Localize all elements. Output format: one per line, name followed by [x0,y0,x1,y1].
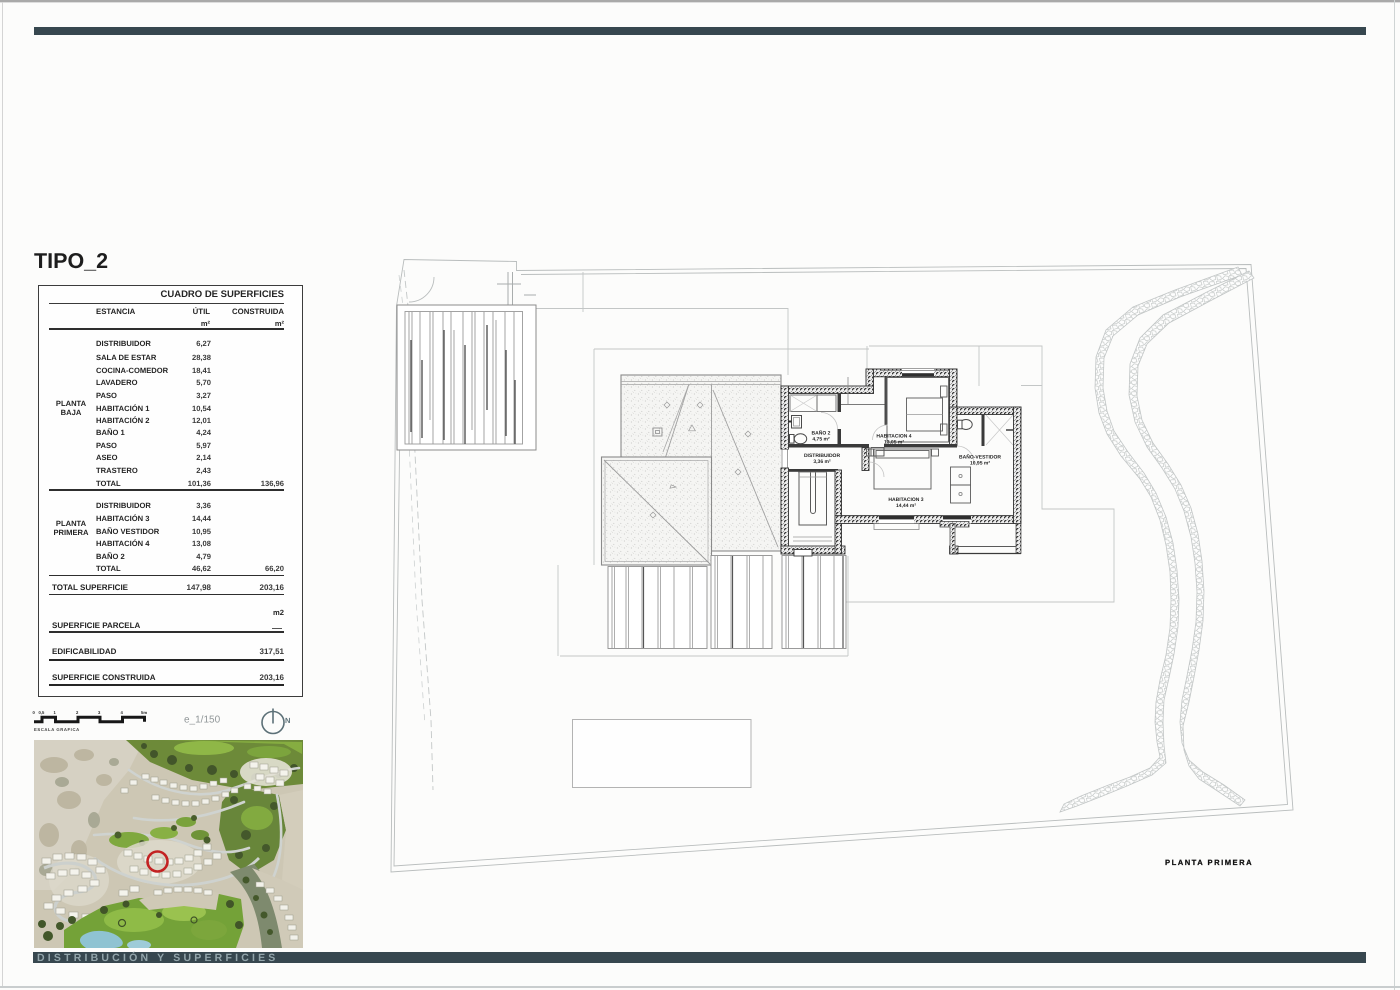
svg-text:e_1/150: e_1/150 [184,715,221,726]
svg-text:PLANTA PRIMERA: PLANTA PRIMERA [1165,858,1253,867]
svg-text:BAÑO-VESTIDOR: BAÑO-VESTIDOR [959,454,1001,461]
svg-text:1: 1 [54,710,57,715]
svg-text:ESCALA GRAFICA: ESCALA GRAFICA [34,727,80,732]
svg-text:2: 2 [76,710,79,715]
svg-text:BAÑO 2: BAÑO 2 [812,430,831,437]
svg-text:4: 4 [121,710,124,715]
svg-text:13,05 m²: 13,05 m² [884,440,904,446]
svg-text:3,36 m²: 3,36 m² [813,459,831,465]
svg-text:3: 3 [98,710,101,715]
svg-text:5m: 5m [141,710,147,715]
svg-text:4,75 m²: 4,75 m² [812,437,830,443]
svg-text:N: N [285,716,290,725]
svg-text:14,44 m²: 14,44 m² [896,503,916,509]
svg-text:0: 0 [33,710,36,715]
svg-text:0,5: 0,5 [39,710,45,715]
svg-text:10,95 m²: 10,95 m² [970,461,990,467]
